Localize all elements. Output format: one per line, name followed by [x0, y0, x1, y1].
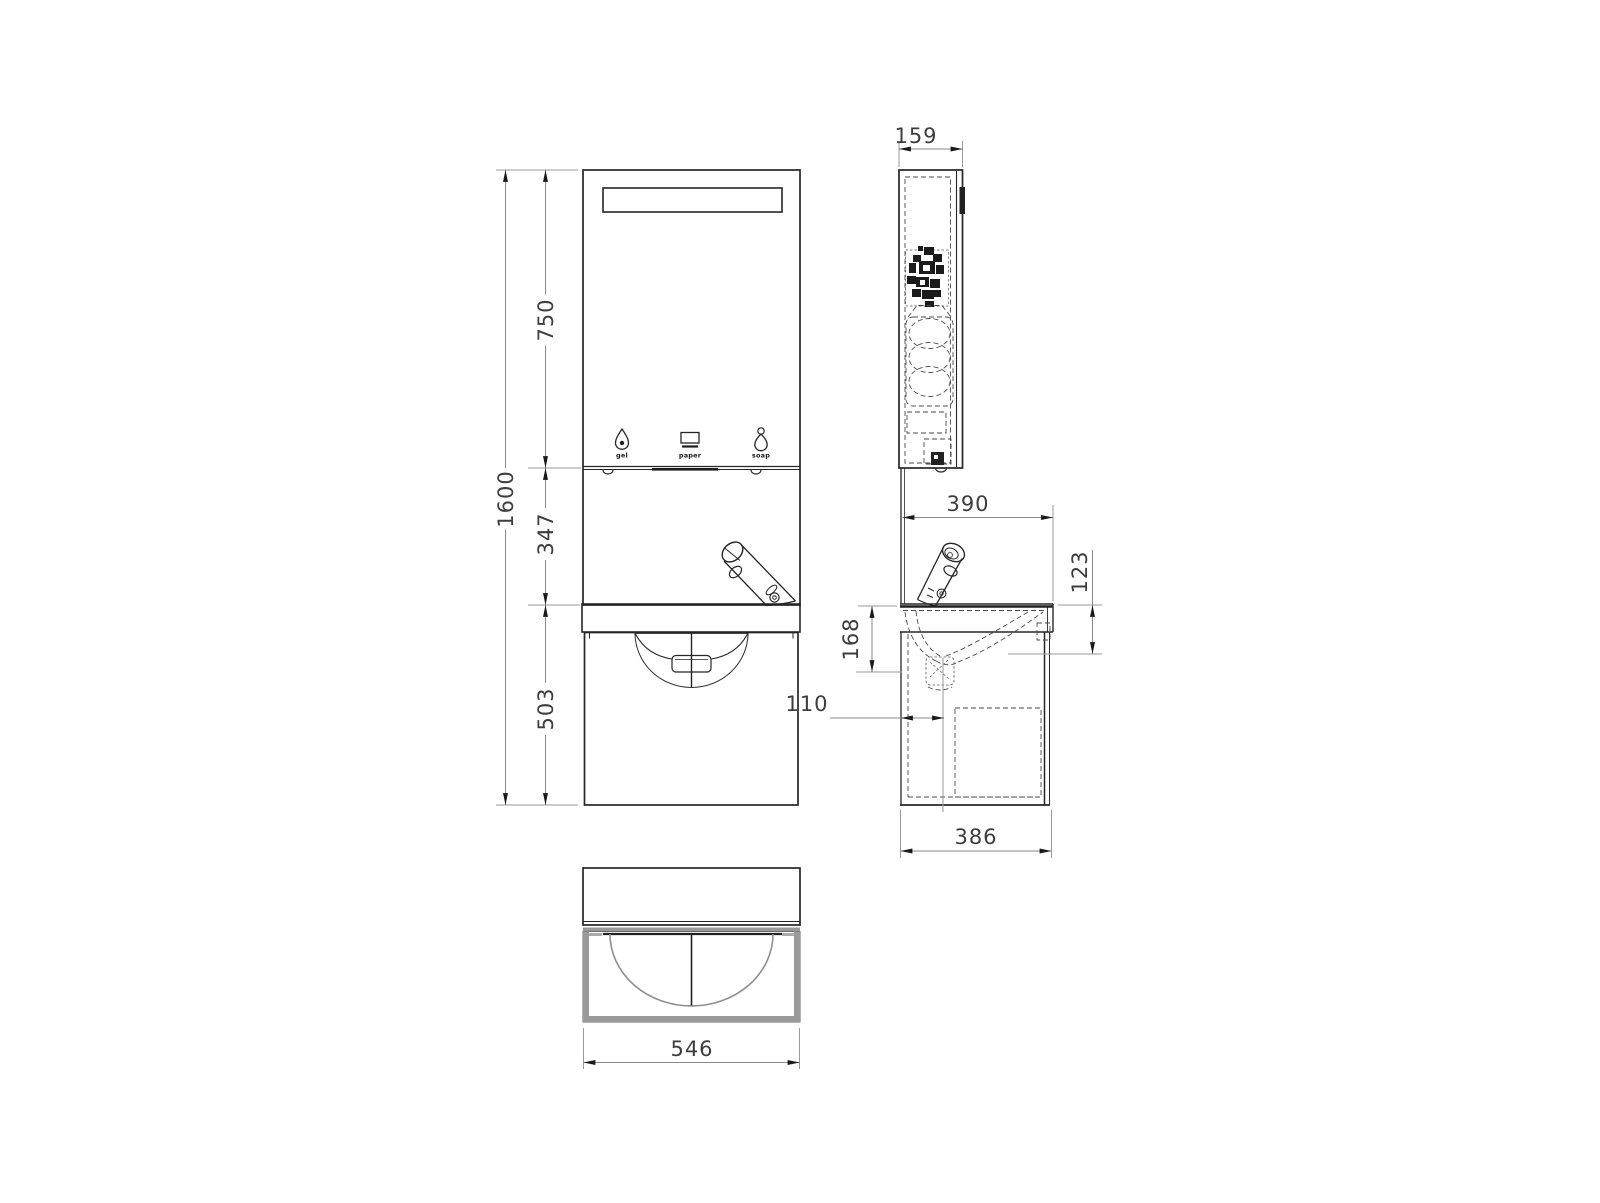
gel-label: gel — [616, 452, 628, 460]
dim-cabinet-depth-label: 386 — [954, 825, 997, 849]
technical-drawing-canvas: gel paper soap — [0, 0, 1600, 1203]
plan-dimensions: 546 — [584, 1028, 800, 1069]
plan-worktop-band — [583, 868, 800, 925]
paper-dispenser: paper — [679, 433, 702, 460]
plan-basin — [589, 934, 794, 1006]
front-mirror-foot-right — [751, 470, 761, 474]
side-faucet — [918, 540, 968, 606]
dim-middle-section-label: 347 — [534, 512, 558, 555]
dim-mirror-section-label: 750 — [534, 298, 558, 341]
front-faucet-cap — [718, 538, 747, 566]
soap-label: soap — [752, 452, 770, 460]
paper-label: paper — [679, 452, 702, 460]
side-mirror-sensor-mark — [960, 187, 966, 214]
soap-icon — [755, 434, 767, 451]
gel-icon — [616, 429, 629, 449]
dim-drain-offset-label: 110 — [785, 692, 828, 716]
plan-view: 546 — [583, 868, 800, 1069]
dim-apron-height-label: 123 — [1068, 550, 1092, 593]
front-mirror-foot-left — [603, 470, 613, 474]
gel-icon-dot — [620, 441, 624, 445]
side-faucet-cap — [939, 540, 967, 566]
front-dimensions: 1600 750 347 503 — [494, 170, 581, 805]
drawing-sheet: gel paper soap — [0, 0, 1600, 1203]
side-dimensions: 159 390 123 168 110 386 — [785, 124, 1102, 858]
side-drain-trap-hidden — [926, 657, 954, 685]
front-faucet — [718, 538, 795, 605]
dim-basin-depth-label: 168 — [839, 617, 863, 660]
side-mirror-cabinet — [899, 170, 963, 468]
side-worktop — [900, 604, 1053, 632]
front-wall-panel — [583, 170, 800, 605]
front-basin — [635, 633, 748, 688]
front-view: gel paper soap — [494, 170, 800, 805]
dim-width-label: 546 — [670, 1037, 713, 1061]
soap-dispenser: soap — [752, 428, 770, 460]
front-countertop — [582, 604, 800, 632]
side-view: 159 390 123 168 110 386 — [785, 124, 1102, 858]
dim-total-height-label: 1600 — [494, 470, 518, 527]
side-basin-hidden — [905, 611, 1050, 690]
side-pump-mechanism — [906, 246, 949, 307]
paper-icon — [681, 433, 699, 444]
side-mirror-inner-hidden — [905, 177, 951, 463]
side-bottle-stack — [906, 306, 953, 473]
dim-mirror-depth-label: 159 — [894, 124, 937, 148]
plan-worktop-edge — [583, 928, 800, 932]
side-siphon-box-hidden — [955, 708, 1041, 797]
dim-worktop-depth-label: 390 — [946, 492, 989, 516]
gel-dispenser: gel — [616, 429, 629, 460]
front-mirror-shadow-strip — [652, 468, 718, 471]
side-faucet-sensor — [942, 564, 959, 578]
front-mirror-bottom-edge — [583, 467, 800, 475]
front-light-window — [603, 188, 782, 212]
dim-cabinet-section-label: 503 — [534, 687, 558, 730]
